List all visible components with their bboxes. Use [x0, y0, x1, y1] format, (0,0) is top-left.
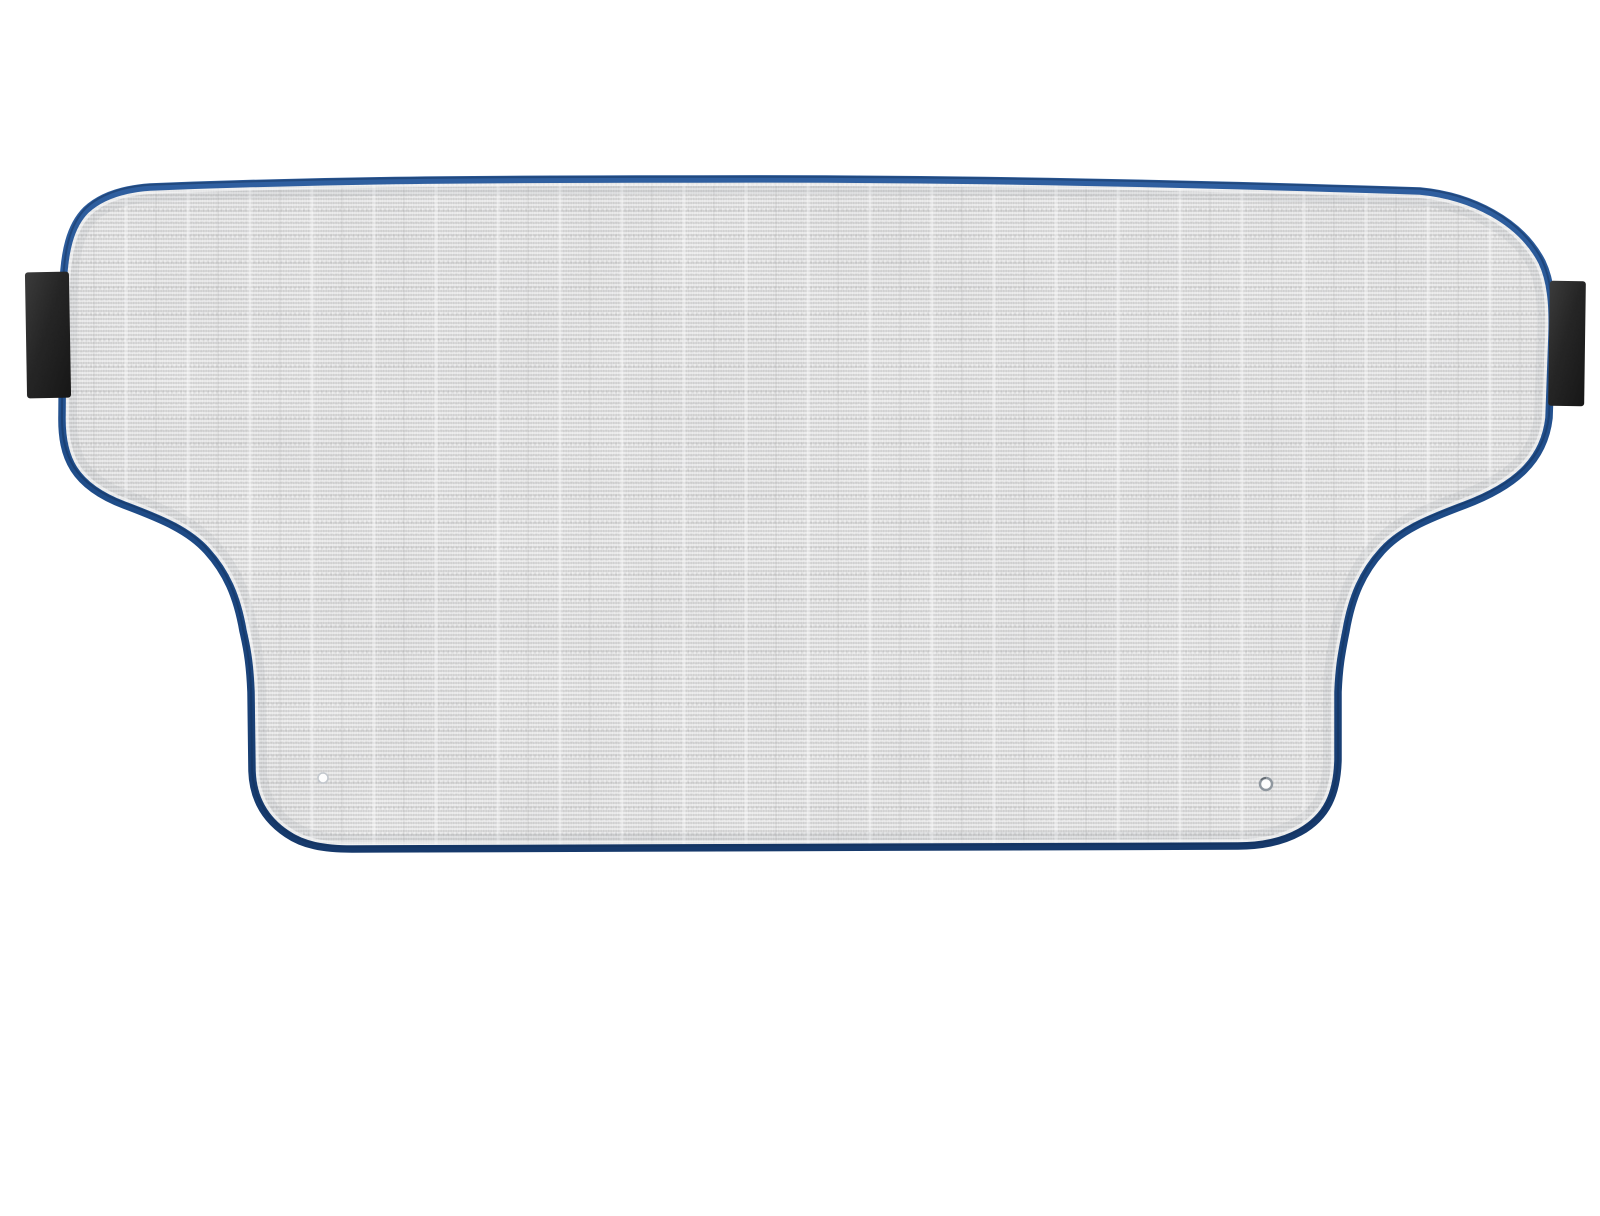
grommet-left: [318, 773, 328, 783]
product-photo-canvas: [0, 0, 1600, 1216]
windshield-cover-illustration: [0, 0, 1600, 1216]
